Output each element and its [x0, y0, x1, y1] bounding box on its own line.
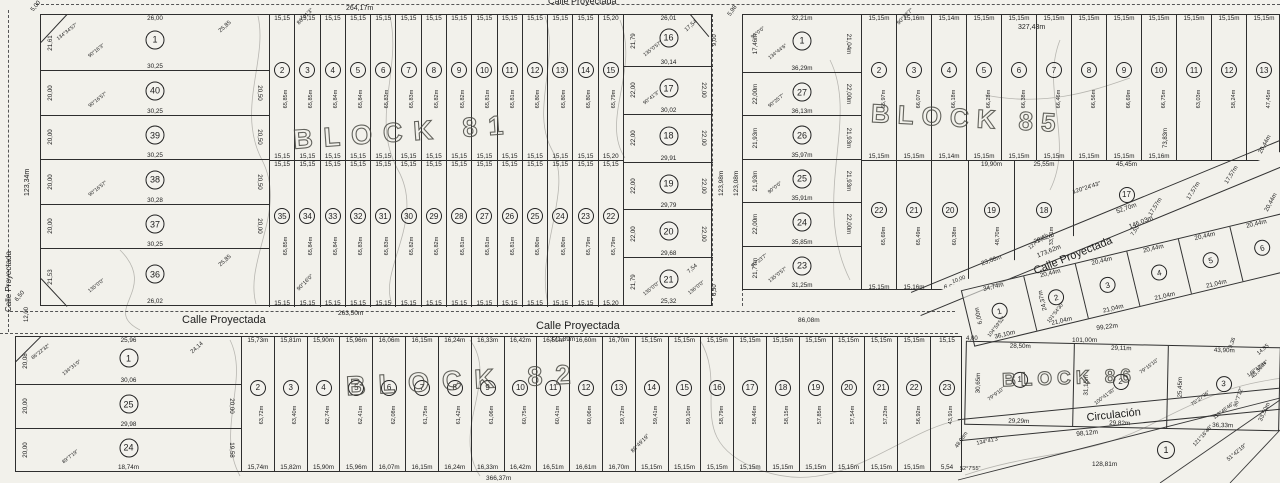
lot-cell: 15,15 14 65,80m 15,15 — [573, 15, 598, 160]
lot-bottom-width: 18,74m — [16, 464, 241, 471]
lot-bottom-width: 29,91 — [624, 155, 713, 162]
lot-depth: 62,08m — [391, 405, 397, 424]
map-annotation: 86,08m — [798, 317, 820, 324]
lot-bottom-width: 15,15 — [270, 153, 294, 160]
lot-top-width: 15,15m — [669, 337, 701, 344]
lot-cell: 22,00m 24 22,00m 35,85m — [743, 203, 861, 246]
lot-depth: 65,83m — [384, 236, 390, 255]
lot-top-width: 28,50m — [967, 342, 1074, 351]
map-annotation: 371,89m — [550, 336, 575, 343]
lot-depth: 65,80m — [535, 236, 541, 255]
lot-number: 22 — [603, 208, 619, 224]
lot-top-width: 15,15m — [898, 337, 930, 344]
map-annotation: Calle Proyectada — [548, 0, 617, 6]
corner-angle: 90°41'3" — [642, 90, 661, 106]
lot-top-width: 15,15 — [396, 15, 420, 22]
lot-right-width: 22,00 — [700, 130, 707, 145]
lot-number: 8 — [426, 62, 442, 78]
lot-depth: 65,85m — [308, 90, 314, 109]
lot-cell: 15,15 32 65,83m 15,15 — [346, 161, 371, 307]
lot-left-width: 21,79 — [630, 33, 637, 48]
lot-bottom-width: 15,20 — [599, 153, 623, 160]
lot-number: 5 — [1201, 251, 1220, 270]
lot-number: 37 — [146, 215, 165, 234]
lot-cell: 32,21m 17,46m 1 21,04m 36,29m 134°44'6" … — [743, 15, 861, 73]
corner-angle: 86°22'32" — [30, 343, 51, 361]
corner-angle: 136°0'0" — [687, 280, 706, 296]
lot-bottom-width: 15,15m — [1107, 153, 1141, 160]
lot-depth: 59,72m — [620, 405, 626, 424]
lot-depth: 65,85m — [283, 90, 289, 109]
lot-bottom-width: 16,61m — [570, 464, 602, 471]
lot-number: 14 — [578, 62, 594, 78]
corner-angle: 90°16'57" — [87, 91, 108, 109]
lot-bottom-width: 15,15m — [767, 464, 799, 471]
lot-bottom-width: 29,79 — [624, 202, 713, 209]
lot-cell: 15,15m 15 59,10m 15,15m — [669, 337, 702, 471]
lot-number: 28 — [451, 208, 467, 224]
lot-number: 21 — [659, 270, 678, 289]
lot-number: 24 — [119, 438, 138, 457]
lot-depth: 65,81m — [485, 90, 491, 109]
lot-top-width: 16,42m — [505, 337, 537, 344]
lot-number: 8 — [1081, 62, 1097, 78]
lot-depth: 65,84m — [358, 90, 364, 109]
lot-right-width: 22,00 — [700, 178, 707, 193]
lot-depth: 66,46m — [1056, 90, 1062, 109]
lot-diagonal-width: 7,54 — [687, 263, 699, 275]
lot-bottom-width: 36,29m — [743, 65, 861, 72]
lot-cell: 15,15 23 43,91m 5,54 — [931, 337, 963, 471]
lot-bottom-width: 15,15m — [1037, 153, 1071, 160]
block-82: 25,96 20,08 1 24,14 30,06 134°31'0" 86°2… — [15, 336, 962, 472]
lot-left-width: 6,00m — [973, 307, 984, 325]
lot-bottom-width: 15,20 — [599, 300, 623, 307]
lot-top-width: 15,15 — [498, 15, 522, 22]
lot-cell: 15,15 31 65,83m 15,15 — [371, 161, 396, 307]
lot-cell: 16,60m 12 60,06m 16,61m — [570, 337, 603, 471]
lot-number: 13 — [611, 380, 627, 396]
lot-left-width: 24,37m — [1037, 290, 1049, 312]
block81-west-lots: 26,00 21,61 1 25,85 30,25 90°16'3" 134°3… — [41, 15, 269, 305]
plat-map: 26,00 21,61 1 25,85 30,25 90°16'3" 134°3… — [0, 0, 1280, 483]
lot-depth: 60,75m — [522, 405, 528, 424]
lot-number: 9 — [451, 62, 467, 78]
lot-depth: 65,83m — [384, 90, 390, 109]
lot-left-width: 21,93m — [752, 127, 759, 148]
lot-left-width: 21,53 — [47, 269, 54, 284]
lot-top-width: 15,15m — [1002, 15, 1036, 22]
lot-bottom-width: 15,15m — [669, 464, 701, 471]
lot-bottom-width: 15,15 — [447, 300, 471, 307]
lot-cell: 15,15 22 65,79m 15,20 — [599, 161, 623, 307]
top-street-line — [36, 4, 1280, 5]
lot-number: 5 — [350, 62, 366, 78]
lot-number: 6 — [1253, 238, 1272, 257]
lot-bottom-width: 35,85m — [743, 239, 861, 246]
lot-bottom-width: 15,15 — [270, 300, 294, 307]
lot-cell: 16,15m 7 61,75m 16,15m — [406, 337, 439, 471]
lot-top-width: 15,15 — [422, 161, 446, 168]
lot-left-width: 22,00 — [630, 130, 637, 145]
lot-cell: 15,15m 2 65,97m 15,15m — [862, 15, 897, 160]
lot-cell: 21,93m 25 21,93m 35,91m 90°0'0" — [743, 160, 861, 203]
lot-number: 7 — [401, 62, 417, 78]
lot-bottom-width: 30,25 — [41, 108, 269, 115]
lot-top-width: 16,24m — [439, 337, 471, 344]
lot-depth: 65,84m — [333, 90, 339, 109]
lot-bottom-width: 15,74m — [242, 464, 274, 471]
lot-top-width: 15,15 — [573, 161, 597, 168]
lot-cell: 15,15m 5 66,28m 15,15m — [967, 15, 1002, 160]
lot-depth: 65,79m — [611, 236, 617, 255]
corner-lot-number: 1 — [1157, 441, 1175, 459]
lot-right-width: 19,58 — [228, 442, 235, 457]
lot-cell: 21,53 36 25,85 26,02 135°0'0" — [41, 249, 269, 305]
lot-right-width: 22,00m — [845, 214, 852, 235]
map-annotation: 123,98m — [718, 171, 725, 196]
lot-depth: 65,83m — [358, 236, 364, 255]
lot-depth: 60,06m — [587, 405, 593, 424]
lot-bottom-width: 15,16m — [1142, 153, 1176, 160]
lot-bottom-width: 30,02 — [624, 107, 713, 114]
lot-right-width: 22,00 — [700, 83, 707, 98]
lot-number: 3 — [299, 62, 315, 78]
lot-number: 13 — [552, 62, 568, 78]
lot-depth: 57,85m — [817, 405, 823, 424]
lot-cell: 16,24m 8 61,42m 16,24m — [439, 337, 472, 471]
lot-depth: 47,45m — [1266, 90, 1272, 109]
lot-top-width: 25,55m — [1015, 161, 1073, 168]
lot-top-width: 15,15 — [346, 15, 370, 22]
lot-number: 10 — [1151, 62, 1167, 78]
lot-number: 35 — [274, 208, 290, 224]
lot-top-width: 15,15 — [371, 15, 395, 22]
lot-left-width: 20,00 — [22, 442, 29, 457]
lot-bottom-width: 16,15m — [406, 464, 438, 471]
lot-depth: 61,42m — [456, 405, 462, 424]
lot-diagonal-width: 25,85 — [218, 254, 233, 268]
lot-number: 25 — [527, 208, 543, 224]
corner-angle: 89°7'19" — [61, 449, 80, 465]
lot-cell: 15,15 2 65,85m 15,15 — [270, 15, 295, 160]
lot-right-width: 20,00 — [256, 219, 263, 234]
lot-top-width: 25,96 — [16, 337, 241, 344]
lot-top-width: 19,90m — [969, 161, 1014, 168]
lot-bottom-width: 16,07m — [373, 464, 405, 471]
lot-top-width: 15,15 — [498, 161, 522, 168]
lot-cell: 15,15 24 65,80m 15,15 — [548, 161, 573, 307]
lot-number: 24 — [793, 213, 812, 232]
corner-angle: 134°31'0" — [61, 359, 82, 377]
lot-number: 21 — [873, 380, 889, 396]
lot-cell: 21 65,49m 15,16m — [897, 161, 932, 291]
lot-number: 15 — [603, 62, 619, 78]
lot-depth: 63,40m — [292, 405, 298, 424]
lot-depth: 65,80m — [535, 90, 541, 109]
lot-number: 18 — [775, 380, 791, 396]
lot-number: 2 — [250, 380, 266, 396]
lot-number: 20 — [659, 222, 678, 241]
lot-bottom-width: 15,15 — [472, 300, 496, 307]
map-annotation: 12,00 — [24, 307, 30, 322]
lot-depth: 65,69m — [881, 227, 887, 246]
lot-bottom-width: 15,15m — [862, 153, 896, 160]
lot-depth: 60,41m — [555, 405, 561, 424]
lot-depth: 43,91m — [948, 405, 954, 424]
corner-angle: 135°0'0" — [87, 277, 106, 293]
lot-bottom-width: 15,15m — [701, 464, 733, 471]
lot-right-width: 22,00m — [845, 84, 852, 105]
lot-top-width: 16,06m — [373, 337, 405, 344]
lot-depth: 63,72m — [259, 405, 265, 424]
corner-angle: 90°16'3" — [87, 43, 106, 59]
lot-bottom-width: 15,15m — [862, 284, 896, 291]
lot-bottom-width: 36,33m — [1167, 421, 1278, 430]
corner-angle: 79°15'10" — [1139, 358, 1160, 376]
lot-bottom-width: 15,15m — [967, 153, 1001, 160]
lot-left-width: 20,00 — [22, 399, 29, 414]
map-annotation: 263,50m — [338, 310, 363, 317]
lot-top-width: 29,11m — [1075, 344, 1168, 353]
lot-number: 12 — [1221, 62, 1237, 78]
lot-number: 1 — [146, 30, 165, 49]
map-annotation: 123,34m — [24, 169, 31, 196]
lot-right-width: 20,50 — [256, 130, 263, 145]
lot-top-width: 15,15m — [701, 337, 733, 344]
lot-depth: 59,10m — [686, 405, 692, 424]
lot-left-width: 22,00 — [630, 83, 637, 98]
lot-number: 13 — [1256, 62, 1272, 78]
lot-left-width: 21,79 — [630, 274, 637, 289]
lot-bottom-width: 15,15m — [800, 464, 832, 471]
lot-top-width: 15,15 — [295, 161, 319, 168]
block86-label: BLOCK 86 — [1002, 366, 1137, 393]
lot-number: 6 — [1011, 62, 1027, 78]
lot-left-width: 21,61 — [47, 35, 54, 50]
lot-top-width: 15,15m — [1247, 15, 1280, 22]
lot-right-width: 20,00 — [228, 399, 235, 414]
lot-cell: 26,01 21,79 16 17,54 30,14 135°0'57" — [624, 15, 713, 67]
mid-street-line-lower — [0, 333, 958, 334]
lot-cell: 15,15 28 65,81m 15,15 — [447, 161, 472, 307]
lot-number: 18 — [1036, 202, 1052, 218]
lot-depth: 65,83m — [409, 90, 415, 109]
lot-bottom-width: 29,98 — [16, 421, 241, 428]
lot-number: 9 — [1116, 62, 1132, 78]
lot-number: 38 — [146, 170, 165, 189]
lot-bottom-width: 15,15 — [396, 300, 420, 307]
lot-bottom-width: 15,90m — [308, 464, 340, 471]
lot-depth: 65,81m — [460, 236, 466, 255]
lot-top-width: 15,15 — [270, 15, 294, 22]
lot-cell: 15,15m 6 66,38m 15,15m — [1002, 15, 1037, 160]
block85-west-lots: 32,21m 17,46m 1 21,04m 36,29m 134°44'6" … — [743, 15, 861, 289]
lot-number: 2 — [274, 62, 290, 78]
lot-cell: 22,00 20 22,00 29,68 — [624, 210, 713, 258]
lot-depth: 65,80m — [561, 90, 567, 109]
lot-cell: 22 65,69m 15,15m — [862, 161, 897, 291]
lot-right-width: 21,04m — [845, 33, 852, 54]
lot-top-width: 15,81m — [275, 337, 307, 344]
corner-angle: 90°16'57" — [87, 180, 108, 198]
lot-bottom-width: 26,02 — [41, 298, 269, 305]
lot-cell: 15,15 35 65,85m 15,15 — [270, 161, 295, 307]
lot-top-width: 15,15 — [422, 15, 446, 22]
map-annotation: Calle Proyectada — [182, 314, 266, 326]
lot-depth: 57,54m — [850, 405, 856, 424]
lot-bottom-width: 16,51m — [537, 464, 569, 471]
corner-angle: 135°0'57" — [642, 40, 663, 58]
lot-number: 11 — [1186, 62, 1202, 78]
lot-cell: 15,73m 2 63,72m 15,74m — [242, 337, 275, 471]
lot-depth: 48,70m — [995, 227, 1001, 246]
lot-depth: 60,38m — [952, 227, 958, 246]
lot-top-width: 15,15m — [1107, 15, 1141, 22]
lot-number: 1 — [793, 31, 812, 50]
lot-number: 25 — [119, 395, 138, 414]
lot-bottom-width: 30,06 — [16, 377, 241, 384]
lot-number: 23 — [793, 256, 812, 275]
lot-bottom-width: 16,33m — [472, 464, 504, 471]
lot-depth: 58,24m — [1231, 90, 1237, 109]
lot-depth: 65,80m — [586, 90, 592, 109]
lot-cell: 21,93m 26 21,93m 35,97m — [743, 116, 861, 159]
lot-cell: 20,00 24 19,58 18,74m 89°7'19" — [16, 429, 241, 472]
lot-depth: 65,84m — [333, 236, 339, 255]
lot-number: 3 — [1215, 376, 1231, 392]
lot-top-width: 15,15 — [371, 161, 395, 168]
map-annotation: Calle Proyectada — [536, 320, 620, 332]
lot-depth: 65,84m — [308, 236, 314, 255]
corner-angle: 134°34'57" — [55, 22, 78, 42]
lot-number: 16 — [709, 380, 725, 396]
lot-cell: 15,81m 3 63,40m 15,82m — [275, 337, 308, 471]
lot-number: 3 — [1098, 275, 1117, 294]
lot-top-width: 15,15m — [833, 337, 865, 344]
lot-depth: 65,81m — [485, 236, 491, 255]
lot-cell: 15,15m 8 66,56m 15,15m — [1072, 15, 1107, 160]
lot-cell: 20,00 37 20,00 30,25 — [41, 205, 269, 250]
lot-top-width: 15,15m — [734, 337, 766, 344]
lot-left-width: 20,00 — [47, 85, 54, 100]
lot-number: 32 — [350, 208, 366, 224]
lot-top-width: 15,15 — [270, 161, 294, 168]
lot-top-width: 15,15m — [1142, 15, 1176, 22]
lot-top-width: 15,15 — [472, 15, 496, 22]
lot-bottom-width: 15,96m — [340, 464, 372, 471]
lot-number: 15 — [676, 380, 692, 396]
lot-number: 24 — [552, 208, 568, 224]
lot-left-width: 20,00 — [47, 219, 54, 234]
lot-number: 34 — [299, 208, 315, 224]
lot-cell: 15,15m 10 66,75m 15,16m — [1142, 15, 1177, 160]
lot-depth: 65,82m — [434, 90, 440, 109]
lot-depth: 65,82m — [409, 236, 415, 255]
lot-cell: 16,06m 6 62,08m 16,07m — [373, 337, 406, 471]
lot-cell: 21,77m 23 31,25m 135°0'57" 90°23'7" — [743, 247, 861, 289]
lot-bottom-width: 15,15 — [346, 300, 370, 307]
lot-bottom-width: 15,15 — [573, 300, 597, 307]
lot-cell: 15,15m 14 59,41m 15,15m — [636, 337, 669, 471]
lot-bottom-width: 15,15 — [548, 153, 572, 160]
lot-left-width: 22,00 — [630, 178, 637, 193]
lot-bottom-width: 36,13m — [743, 108, 861, 115]
lot-cell: 15,15 29 65,82m 15,15 — [422, 161, 447, 307]
lot-top-width: 16,70m — [603, 337, 635, 344]
lot-bottom-width: 15,15m — [865, 464, 897, 471]
corner-angle: 90°0'0" — [766, 181, 782, 196]
lot-cell: 25,96 20,08 1 24,14 30,06 134°31'0" 86°2… — [16, 337, 241, 385]
lot-top-width: 15,15 — [396, 161, 420, 168]
lot-number: 2 — [871, 62, 887, 78]
lot-top-width: 15,90m — [308, 337, 340, 344]
lot-cell: 22,00 18 22,00 29,91 — [624, 115, 713, 163]
lot-left-width: 30,65m — [975, 373, 982, 394]
lot-bottom-width: 15,15 — [472, 153, 496, 160]
lot-cell: 15,15 27 65,81m 15,15 — [472, 161, 497, 307]
lot-number: 22 — [871, 202, 887, 218]
lot-cell: 15,15m 12 58,24m — [1212, 15, 1247, 160]
lot-top-width: 15,15m — [1177, 15, 1211, 22]
lot-cell: 21,79 21 7,54 25,32 135°0'0" 136°0'0" — [624, 258, 713, 305]
lot-number: 40 — [146, 81, 165, 100]
lot-cell: 20,00 38 20,50 30,28 90°16'57" — [41, 160, 269, 205]
lot-bottom-width: 29,68 — [624, 250, 713, 257]
lot-bottom-width: 15,15m — [833, 464, 865, 471]
lot-number: 6 — [375, 62, 391, 78]
lot-top-width: 15,15m — [862, 15, 896, 22]
lot-top-width: 45,45m — [1074, 161, 1179, 168]
lot-left-width: 20,00 — [47, 174, 54, 189]
corner-angle: 90°25'7" — [767, 93, 786, 109]
lot-number: 27 — [476, 208, 492, 224]
lot-top-width: 15,15 — [472, 161, 496, 168]
lot-number: 19 — [984, 202, 1000, 218]
lot-top-width: 15,15 — [548, 161, 572, 168]
lot-top-width: 15,15 — [573, 15, 597, 22]
lot-depth: 65,85m — [283, 236, 289, 255]
lot-number: 22 — [906, 380, 922, 396]
lot-bottom-width: 16,42m — [505, 464, 537, 471]
lot-number: 23 — [578, 208, 594, 224]
lot-top-width: 15,15m — [865, 337, 897, 344]
lot-cell: 15,15 13 65,80m 15,15 — [548, 15, 573, 160]
lot-top-width: 15,15 — [599, 161, 623, 168]
lot-number: 5 — [976, 62, 992, 78]
lot-cell: 15,15m 13 47,45m — [1247, 15, 1280, 160]
lot-bottom-width: 30,14 — [624, 59, 713, 66]
lot-depth: 58,46m — [752, 405, 758, 424]
lot-number: 14 — [644, 380, 660, 396]
lot-depth: 65,82m — [460, 90, 466, 109]
lot-cell: 15,16m 3 66,07m 15,15m — [897, 15, 932, 160]
lot-depth: 56,92m — [916, 405, 922, 424]
lot-cell: 16,42m 10 60,75m 16,42m — [505, 337, 538, 471]
lot-cell: 15,15 12 65,80m 15,15 — [523, 15, 548, 160]
corner-angle: 134°44'6" — [767, 43, 788, 61]
lot-right-width: 20,50 — [256, 174, 263, 189]
lot-top-width: 15,15 — [346, 161, 370, 168]
lot-left-width: 22,00m — [752, 214, 759, 235]
corner-angle: 135°0'0" — [642, 281, 661, 297]
lot-depth: 66,75m — [1161, 90, 1167, 109]
lot-cell: 15,15m 17 58,46m 15,15m — [734, 337, 767, 471]
lot-bottom-width: 15,15 — [321, 153, 345, 160]
block82-west-lots: 25,96 20,08 1 24,14 30,06 134°31'0" 86°2… — [16, 337, 241, 471]
lot-bottom-width: 15,15 — [573, 153, 597, 160]
block85-north-lots: 15,15m 2 65,97m 15,15m 15,16m 3 66,07m 1… — [861, 15, 1280, 161]
